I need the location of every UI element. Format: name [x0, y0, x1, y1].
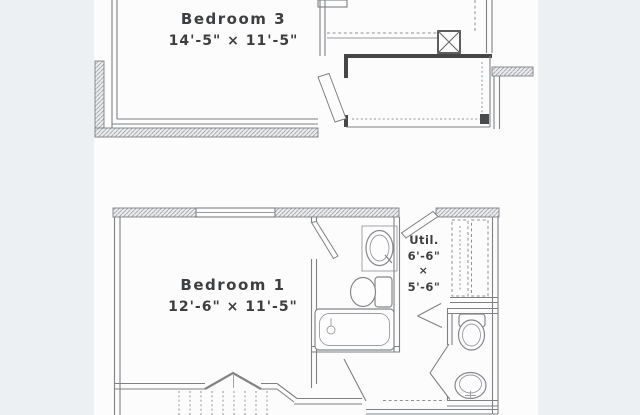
bathtub-icon — [315, 309, 394, 350]
bedroom3-name: Bedroom 3 — [146, 11, 321, 28]
exterior-wall — [436, 208, 499, 217]
laundry-closet — [450, 220, 498, 303]
window — [318, 0, 347, 7]
round-sink-icon — [455, 373, 486, 400]
toilet-icon — [459, 314, 486, 350]
staircase — [179, 391, 267, 415]
utility-width: 6'-6" — [396, 250, 452, 263]
window — [196, 208, 275, 217]
half-bath — [430, 309, 498, 407]
bedroom1-dimensions: 12'-6" × 11'-5" — [143, 299, 323, 315]
floorplan-drawing — [0, 0, 640, 415]
exterior-wall — [95, 128, 318, 137]
exterior-wall — [493, 217, 499, 414]
exterior-wall — [492, 67, 533, 76]
toilet-icon — [351, 277, 393, 307]
sink-icon — [366, 231, 393, 266]
utility-times: × — [396, 265, 452, 278]
bedroom1-name: Bedroom 1 — [143, 277, 323, 294]
exterior-wall — [95, 61, 104, 137]
utility-label: Util. 6'-6" × 5'-6" — [396, 231, 452, 294]
bedroom1-label: Bedroom 1 12'-6" × 11'-5" — [143, 277, 323, 315]
bedroom3-dimensions: 14'-5" × 11'-5" — [146, 33, 321, 49]
door-leaf — [312, 222, 339, 259]
door-swing — [344, 359, 366, 401]
utility-depth: 5'-6" — [396, 281, 452, 294]
door-swing — [430, 344, 450, 400]
utility-door-swing — [418, 304, 443, 328]
exterior-wall — [494, 76, 500, 129]
door-leaf — [318, 74, 346, 123]
floorplan-image: Bedroom 3 14'-5" × 11'-5" Bedroom 1 12'-… — [0, 0, 640, 415]
bedroom3-label: Bedroom 3 14'-5" × 11'-5" — [146, 11, 321, 49]
exterior-wall — [113, 208, 196, 217]
stair-landing — [344, 56, 492, 127]
landing-post — [480, 114, 489, 124]
exterior-wall — [115, 217, 121, 415]
closet — [320, 0, 492, 56]
utility-name: Util. — [396, 234, 452, 247]
exterior-wall — [275, 208, 399, 217]
column-box — [438, 31, 460, 53]
